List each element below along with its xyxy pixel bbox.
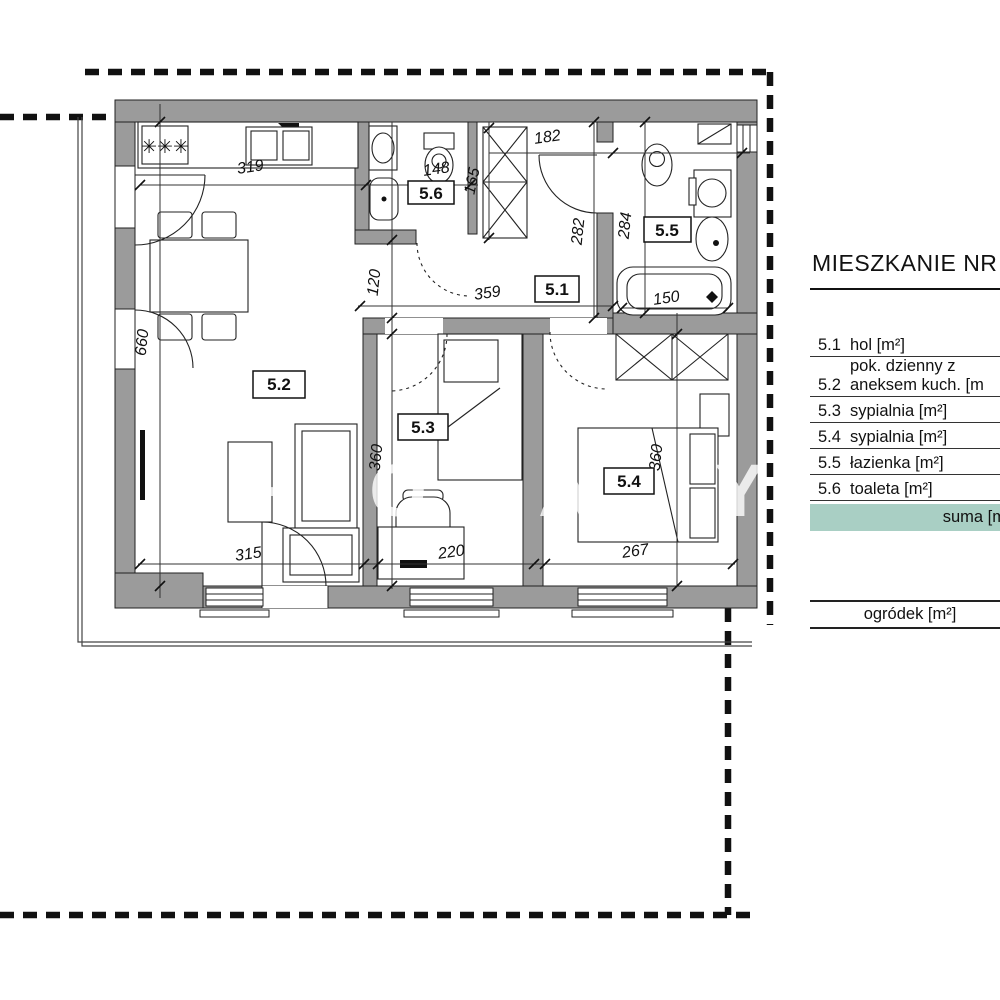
wall-hall-bath-a bbox=[597, 122, 613, 142]
dim-bathroom-height: 284 bbox=[616, 211, 636, 240]
room-name: hol [m²] bbox=[850, 336, 1000, 355]
room-label-hall: 5.1 bbox=[545, 280, 569, 299]
wall-corner-block bbox=[115, 573, 203, 608]
watermark-letter: Y bbox=[714, 449, 763, 532]
stove-burners-icon: ✳✳✳ bbox=[141, 136, 189, 158]
title-underline bbox=[810, 288, 1000, 290]
window-bath bbox=[737, 125, 757, 152]
room-name-line1: pok. dzienny z bbox=[850, 357, 955, 375]
table-row: 5.1 hol [m²] bbox=[810, 331, 1000, 357]
bath-door-arc bbox=[539, 155, 597, 213]
watermark-letter: O bbox=[369, 449, 427, 532]
dim-living-width: 315 bbox=[234, 544, 263, 565]
double-bed-pillow-icon bbox=[690, 434, 715, 484]
wall-hall-bath-b bbox=[597, 213, 613, 318]
window-2 bbox=[410, 588, 493, 606]
sink-bowl-right-icon bbox=[283, 131, 309, 160]
wall-left-c bbox=[115, 368, 135, 573]
window-3-sill bbox=[572, 610, 673, 617]
toilet-door-arc bbox=[417, 243, 470, 296]
room-number: 5.2 bbox=[810, 376, 850, 395]
chair-icon bbox=[202, 314, 236, 340]
window-2-sill bbox=[404, 610, 499, 617]
watermark-letter: A bbox=[538, 449, 591, 532]
floor-plan-page: ✳✳✳ 319 148 165 182 282 284 120 359 660 … bbox=[0, 0, 1000, 1000]
table-row: 5.2 pok. dzienny z aneksem kuch. [m bbox=[810, 357, 1000, 397]
bath-wc-inner-icon bbox=[650, 152, 665, 167]
suma-row: suma [m bbox=[810, 504, 1000, 531]
room-number: 5.1 bbox=[810, 336, 850, 355]
sofa-chaise-cushion-icon bbox=[290, 535, 352, 575]
wall-bath-bottom bbox=[613, 313, 757, 334]
room-number: 5.5 bbox=[810, 454, 850, 473]
radiator-icon bbox=[140, 430, 145, 500]
wall-left-a bbox=[115, 122, 135, 167]
room-name: pok. dzienny z aneksem kuch. [m bbox=[850, 357, 1000, 395]
balcony-door-opening bbox=[262, 586, 328, 608]
dim-hall-width: 359 bbox=[473, 283, 502, 304]
washing-machine-panel-icon bbox=[689, 178, 696, 205]
garden-door-opening bbox=[115, 309, 135, 369]
washbasin-bowl-icon bbox=[372, 133, 394, 163]
room-number: 5.6 bbox=[810, 480, 850, 499]
bed2-door-arc bbox=[550, 332, 607, 389]
table-row: 5.5 łazienka [m²] bbox=[810, 449, 1000, 475]
washbasin2-drain-icon bbox=[382, 197, 387, 202]
room-label-toilet: 5.6 bbox=[419, 184, 443, 203]
room-label-bathroom: 5.5 bbox=[655, 221, 679, 240]
dim-hall-left-height: 120 bbox=[365, 268, 385, 296]
table-row: 5.6 toaleta [m²] bbox=[810, 475, 1000, 501]
dim-living-height: 660 bbox=[133, 328, 153, 356]
entrance-door-opening bbox=[115, 166, 135, 228]
window-1 bbox=[206, 588, 263, 606]
room-name-line2: aneksem kuch. [m bbox=[850, 376, 984, 394]
room-number: 5.3 bbox=[810, 402, 850, 421]
wall-left-b bbox=[115, 227, 135, 310]
apartment-title: MIESZKANIE NR bbox=[812, 250, 997, 277]
dim-hall-right-height: 282 bbox=[569, 217, 589, 246]
sink-bowl-left-icon bbox=[251, 131, 277, 160]
dining-table-icon bbox=[150, 240, 248, 312]
room-label-bedroom2: 5.4 bbox=[617, 472, 641, 491]
bath-washbasin-drain-icon bbox=[713, 240, 719, 246]
sofa-cushion-icon bbox=[302, 431, 350, 521]
watermark-letter: H bbox=[245, 451, 298, 534]
dim-hall-top: 182 bbox=[533, 127, 562, 148]
table-row: 5.3 sypialnia [m²] bbox=[810, 397, 1000, 423]
room-legend-table: 5.1 hol [m²] 5.2 pok. dzienny z aneksem … bbox=[810, 331, 1000, 531]
dim-kitchen-width: 319 bbox=[236, 157, 265, 178]
room-name: łazienka [m²] bbox=[850, 454, 1000, 473]
room-name: toaleta [m²] bbox=[850, 480, 1000, 499]
chair-icon bbox=[202, 212, 236, 238]
chair-icon bbox=[158, 212, 192, 238]
window-3 bbox=[578, 588, 667, 606]
room-name: sypialnia [m²] bbox=[850, 402, 1000, 421]
single-bed-pillow-icon bbox=[444, 340, 498, 382]
wall-top bbox=[115, 100, 757, 122]
window-1-sill bbox=[200, 610, 269, 617]
wall-toilet-bottom bbox=[355, 230, 416, 244]
bed2-door-opening bbox=[550, 318, 607, 334]
room-label-bedroom1: 5.3 bbox=[411, 418, 435, 437]
garden-row: ogródek [m²] bbox=[810, 600, 1000, 629]
bath-washbasin-icon bbox=[696, 217, 728, 261]
washing-machine-drum-icon bbox=[698, 179, 726, 207]
room-name: sypialnia [m²] bbox=[850, 428, 1000, 447]
double-bed-pillow-icon bbox=[690, 488, 715, 538]
room-number: 5.4 bbox=[810, 428, 850, 447]
chair-icon bbox=[158, 314, 192, 340]
dim-wardrobe-depth: 165 bbox=[462, 166, 484, 196]
dim-bedroom2-width: 267 bbox=[620, 541, 651, 562]
table-row: 5.4 sypialnia [m²] bbox=[810, 423, 1000, 449]
room-label-living: 5.2 bbox=[267, 375, 291, 394]
